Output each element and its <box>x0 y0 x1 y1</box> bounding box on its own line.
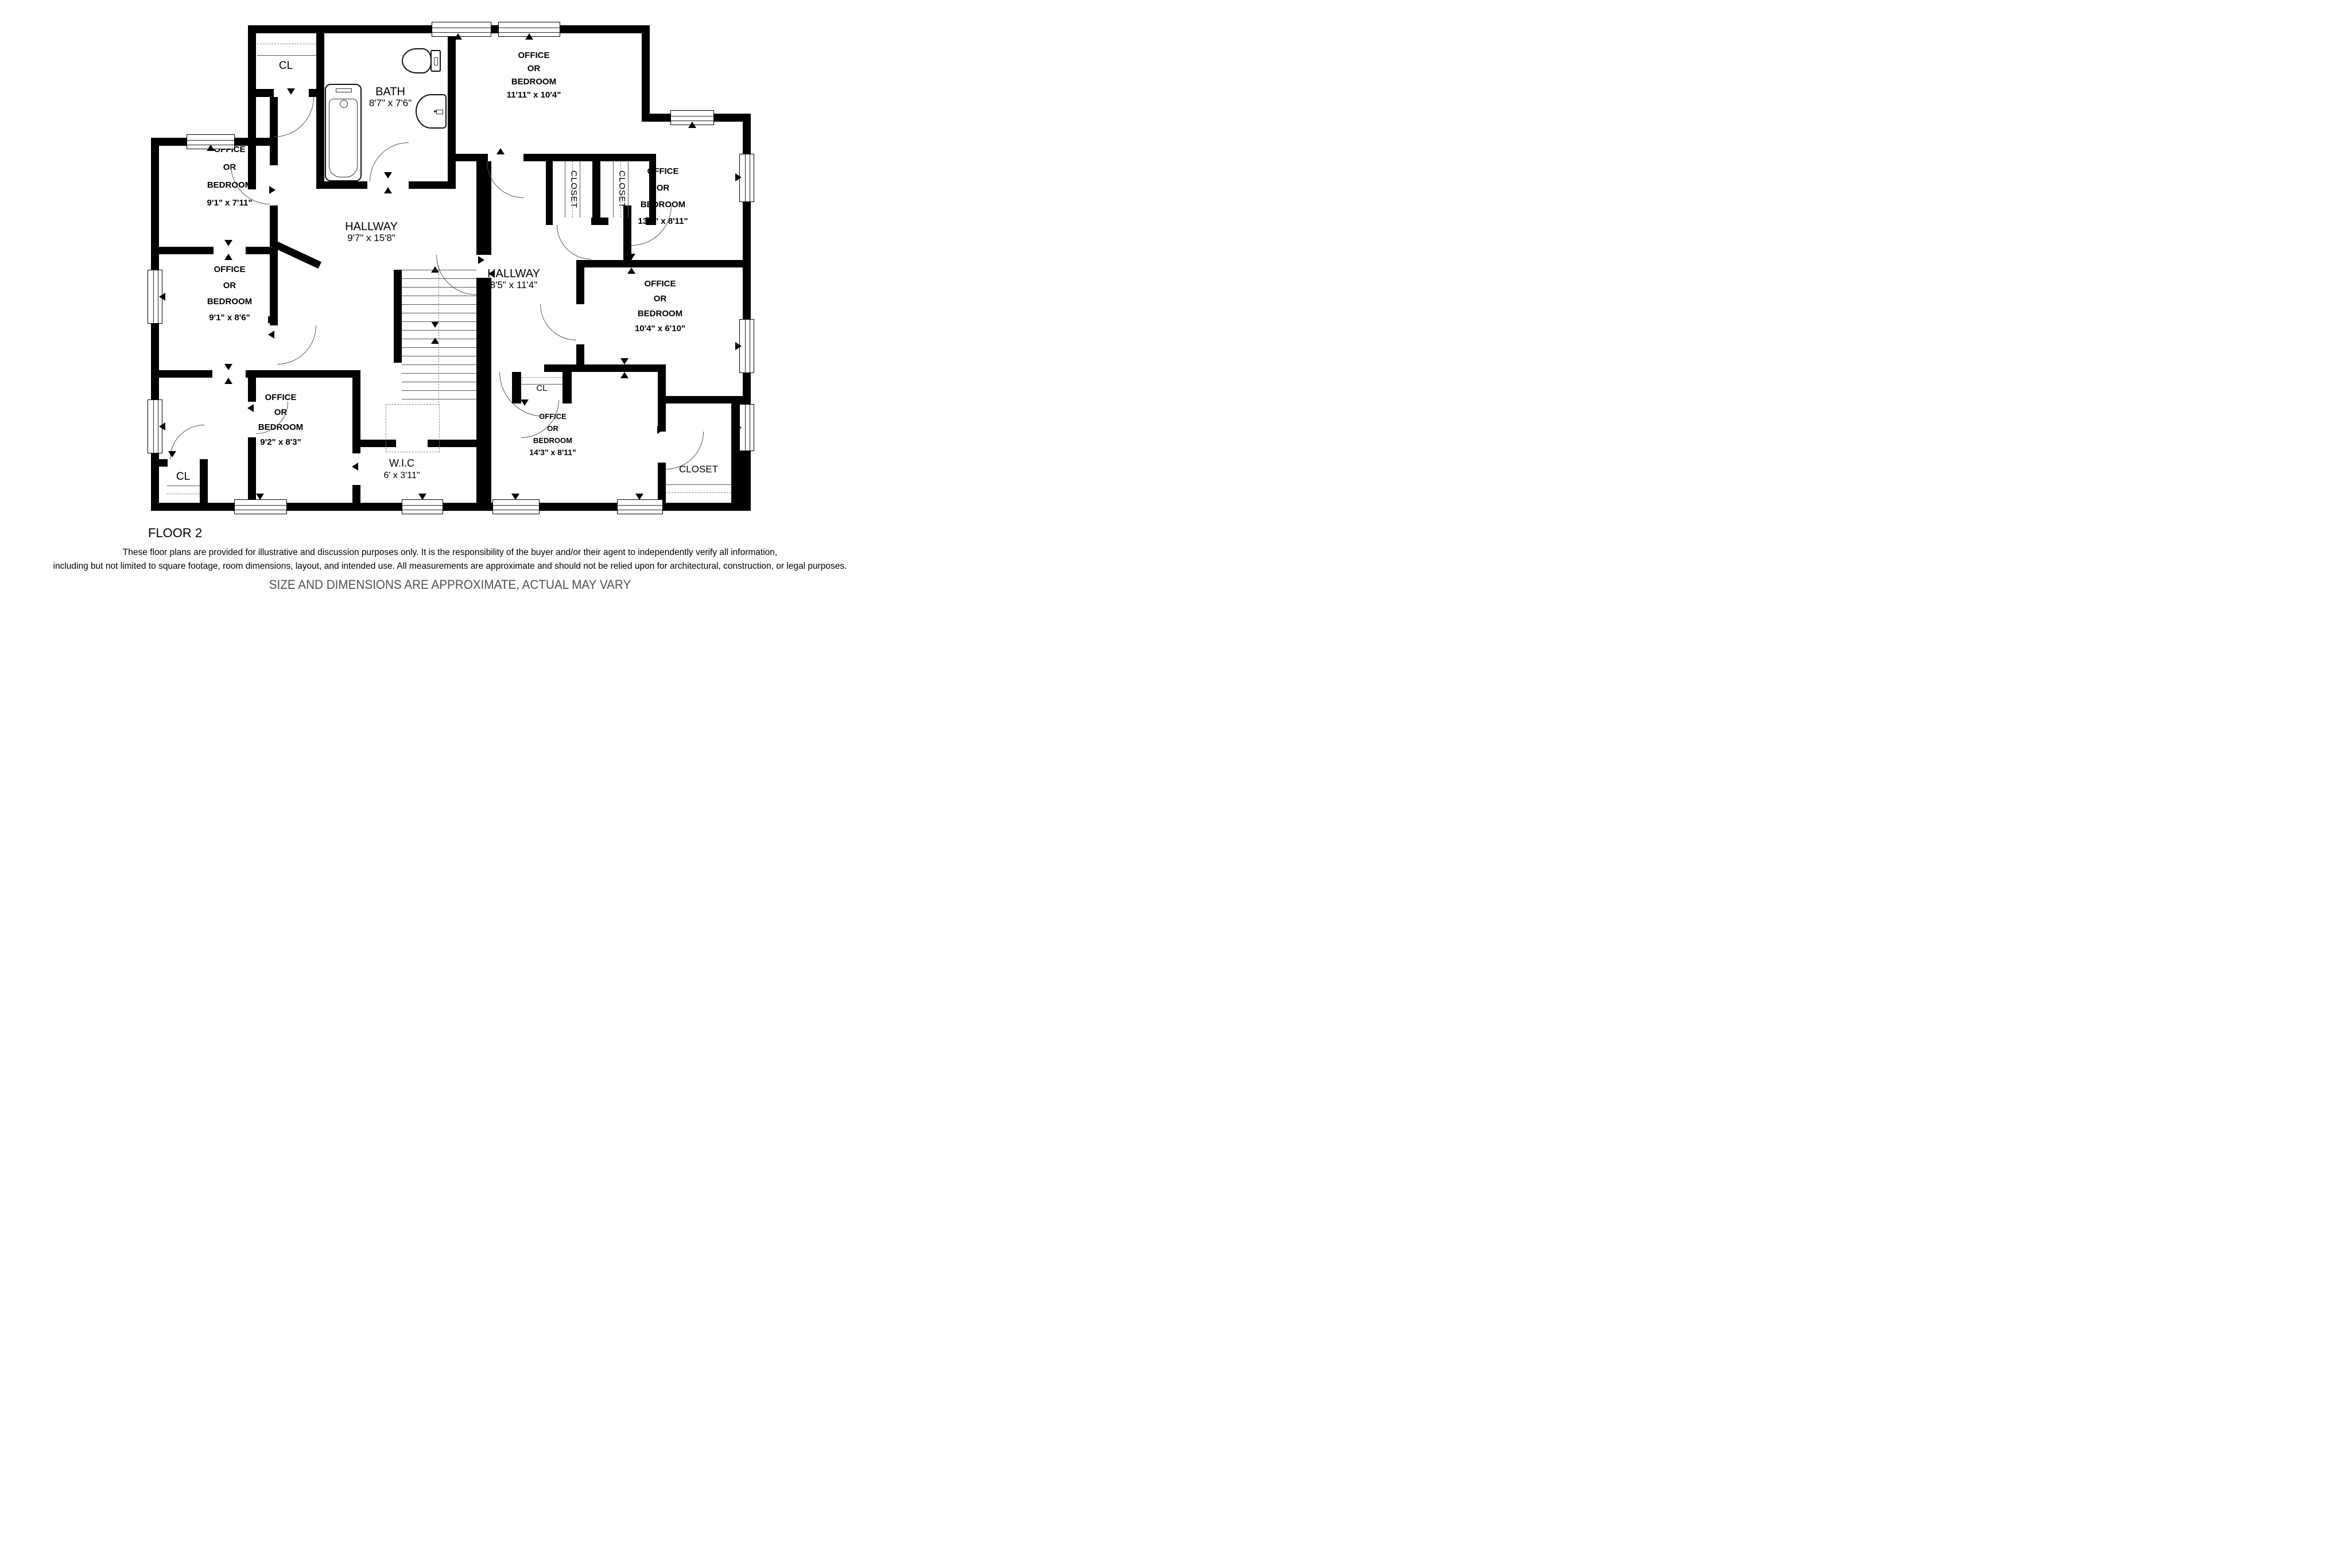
closet-shelf-line <box>580 161 580 218</box>
closet-shelf-line <box>521 384 562 385</box>
door-arc-icon <box>487 161 523 198</box>
closet-shelf-line <box>666 484 731 485</box>
wall <box>159 459 168 467</box>
window-icon <box>617 499 663 514</box>
wall <box>666 396 743 403</box>
wall <box>576 260 751 267</box>
wall <box>546 154 656 161</box>
stair-tread <box>402 304 476 305</box>
stair-tread <box>402 347 476 348</box>
direction-arrow-icon <box>352 463 358 471</box>
closet-shelf-line <box>628 161 629 218</box>
direction-arrow-icon <box>418 494 426 500</box>
stair-tread <box>402 399 476 399</box>
wic-label: W.I.C 6' x 3'11" <box>362 457 442 482</box>
wall <box>270 205 278 325</box>
wall <box>591 218 608 225</box>
direction-arrow-icon <box>287 88 295 95</box>
direction-arrow-icon <box>627 267 635 274</box>
direction-arrow-icon <box>521 399 529 406</box>
direction-arrow-icon <box>268 331 274 339</box>
floor-plan: OFFICEOR BEDROOM9'1" x 7'11" OFFICEOR BE… <box>0 0 900 511</box>
closet-rod-line <box>167 494 200 494</box>
wall <box>523 154 546 161</box>
room-label-office-bedroom-4: OFFICEOR BEDROOM11'11" x 10'4" <box>482 49 585 102</box>
direction-arrow-icon <box>224 378 232 384</box>
closet-rod-line <box>257 44 316 44</box>
closet-rod-line <box>521 377 562 378</box>
door-arc-icon <box>540 304 576 340</box>
stair-tread <box>402 313 476 313</box>
direction-arrow-icon <box>478 256 484 264</box>
stair-tread <box>402 339 476 339</box>
direction-arrow-icon <box>454 33 462 40</box>
stair-tread <box>402 330 476 331</box>
door-arc-icon <box>436 255 476 295</box>
door-arc-icon <box>274 97 314 137</box>
stair-tread <box>402 270 476 270</box>
wall <box>394 270 402 363</box>
wall <box>248 378 256 402</box>
direction-arrow-icon <box>269 186 276 194</box>
direction-arrow-icon <box>159 293 165 301</box>
room-label-office-bedroom-6: OFFICEOR BEDROOM10'4" x 6'10" <box>608 277 712 336</box>
direction-arrow-icon <box>159 422 165 430</box>
wall <box>159 370 212 378</box>
hallway1-label: HALLWAY9'7" x 15'8" <box>320 222 423 243</box>
window-icon <box>492 499 540 514</box>
direction-arrow-icon <box>256 494 264 500</box>
room-label-office-bedroom-2: OFFICEOR BEDROOM9'1" x 8'6" <box>178 262 281 326</box>
wall <box>562 396 572 403</box>
wall <box>151 138 159 511</box>
wall <box>576 267 584 304</box>
wall <box>159 247 214 254</box>
wall <box>658 372 666 432</box>
wall <box>658 463 666 503</box>
closet-shelf-line <box>565 161 565 218</box>
closet-rod-line <box>572 161 573 218</box>
floor-title: FLOOR 2 <box>148 526 202 541</box>
wall <box>544 364 666 372</box>
stair-tread <box>402 321 476 322</box>
stair-landing <box>386 404 440 452</box>
wall <box>562 372 572 396</box>
direction-arrow-icon <box>735 424 742 432</box>
stair-tread <box>402 356 476 356</box>
window-icon <box>234 499 287 514</box>
closet-rod-line <box>620 161 621 218</box>
direction-arrow-icon <box>635 494 643 500</box>
direction-arrow-icon <box>375 440 383 446</box>
wall <box>642 25 650 122</box>
wall <box>248 437 256 503</box>
floor-plan-page: OFFICEOR BEDROOM9'1" x 7'11" OFFICEOR BE… <box>0 0 900 600</box>
bathtub-icon <box>325 84 362 181</box>
direction-arrow-icon <box>620 358 629 364</box>
direction-arrow-icon <box>627 254 635 260</box>
disclaimer-line-2: including but not limited to square foot… <box>0 561 900 572</box>
stair-tread <box>402 296 476 296</box>
direction-arrow-icon <box>384 187 392 193</box>
direction-arrow-icon <box>224 240 232 246</box>
stair-tread <box>402 373 476 374</box>
wall <box>352 378 360 453</box>
sink-icon <box>416 94 447 129</box>
toilet-icon <box>402 48 442 75</box>
wall <box>316 181 367 189</box>
direction-arrow-icon <box>657 426 664 434</box>
direction-arrow-icon <box>384 172 392 178</box>
door-arc-icon <box>631 205 672 246</box>
stair-tread <box>402 278 476 279</box>
closet-label-bottom-left: CL <box>160 471 206 483</box>
direction-arrow-icon <box>511 494 519 500</box>
direction-arrow-icon <box>224 364 232 370</box>
stair-centerline <box>439 265 439 403</box>
closet-shelf-line <box>257 55 316 56</box>
wall <box>200 459 208 503</box>
direction-arrow-icon <box>688 122 696 128</box>
stair-tread <box>402 287 476 288</box>
direction-arrow-icon <box>620 372 629 378</box>
stair-tread <box>402 364 476 365</box>
closet-label-top-left: CL <box>263 60 309 72</box>
direction-arrow-icon <box>268 316 274 324</box>
direction-arrow-icon <box>482 399 488 407</box>
wall <box>246 370 360 378</box>
wall <box>546 218 553 225</box>
wall <box>352 485 360 503</box>
direction-arrow-icon <box>735 173 742 181</box>
wall <box>476 278 491 503</box>
stair-tread <box>402 382 476 382</box>
direction-arrow-icon <box>224 254 232 260</box>
wall <box>256 89 274 97</box>
door-arc-icon <box>557 225 591 259</box>
direction-arrow-icon <box>525 33 533 40</box>
closet-shelf-line <box>167 486 200 486</box>
direction-arrow-icon <box>168 451 176 457</box>
direction-arrow-icon <box>247 404 254 412</box>
wall <box>592 161 600 218</box>
footer-note: SIZE AND DIMENSIONS ARE APPROXIMATE, ACT… <box>27 577 873 592</box>
closet-rod-line <box>666 492 731 493</box>
direction-arrow-icon <box>207 145 215 151</box>
direction-arrow-icon <box>496 148 505 154</box>
wall <box>316 33 324 189</box>
direction-arrow-icon <box>488 270 495 278</box>
wall <box>546 161 553 218</box>
window-icon <box>402 499 443 514</box>
direction-arrow-icon <box>735 342 742 350</box>
direction-arrow-icon <box>431 321 439 328</box>
door-arc-icon <box>277 325 316 364</box>
stair-tread <box>402 390 476 391</box>
wall <box>448 33 456 189</box>
closet-shelf-line <box>613 161 614 218</box>
disclaimer-line-1: These floor plans are provided for illus… <box>0 548 900 558</box>
wall <box>456 154 488 161</box>
